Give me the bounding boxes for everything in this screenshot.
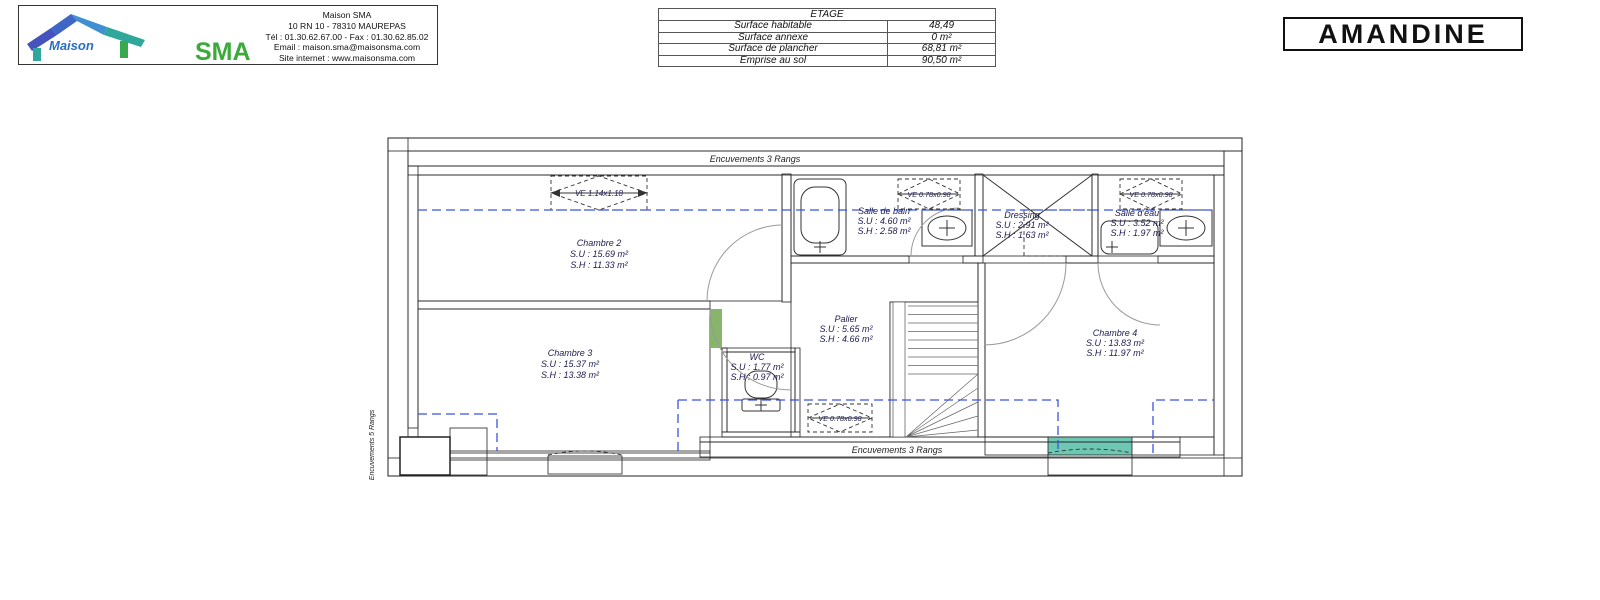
svg-text:Chambre 4: Chambre 4 — [1093, 328, 1138, 338]
room-label-chambre-4: Chambre 4 S.U : 13.83 m² S.H : 11.97 m² — [1086, 328, 1145, 358]
room-label-salle-de-bain: Salle de bain S.U : 4.60 m² S.H : 2.58 m… — [857, 206, 911, 236]
door-arc — [984, 263, 1066, 345]
svg-text:S.U : 1.77 m²: S.U : 1.77 m² — [730, 362, 784, 372]
roof-window-label: VE 0.78x0.98 — [1129, 190, 1172, 199]
svg-text:S.H : 11.97 m²: S.H : 11.97 m² — [1086, 348, 1144, 358]
svg-text:Salle d'eau: Salle d'eau — [1115, 208, 1159, 218]
floor-plan: Encuvements 3 Rangs — [0, 0, 1600, 600]
svg-text:Salle de bain: Salle de bain — [858, 206, 910, 216]
partition-walls — [418, 174, 1214, 437]
top-band-label: Encuvements 3 Rangs — [710, 154, 801, 164]
bathtub-icon — [794, 179, 846, 255]
bottom-band-label: Encuvements 3 Rangs — [852, 445, 943, 455]
svg-text:Palier: Palier — [834, 314, 858, 324]
bottom-structure: Encuvements 3 Rangs — [388, 138, 1242, 476]
washbasin-icon — [1160, 210, 1212, 246]
svg-text:S.U : 13.83 m²: S.U : 13.83 m² — [1086, 338, 1145, 348]
height-limit-line — [1153, 400, 1214, 453]
building-outline — [388, 138, 1242, 476]
room-label-palier: Palier S.U : 5.65 m² S.H : 4.66 m² — [819, 314, 873, 344]
door-arc — [707, 225, 783, 301]
roof-window-label: VE 0.78x0.98 — [818, 414, 861, 423]
svg-text:S.U : 15.69 m²: S.U : 15.69 m² — [570, 249, 629, 259]
svg-text:S.H : 11.33 m²: S.H : 11.33 m² — [570, 260, 628, 270]
svg-text:S.U : 5.65 m²: S.U : 5.65 m² — [819, 324, 873, 334]
washbasin-icon — [922, 210, 972, 246]
roof-window-marker: VE 0.78x0.98 — [1120, 179, 1182, 209]
wall-niche — [400, 437, 450, 475]
svg-text:S.H : 1.97 m²: S.H : 1.97 m² — [1110, 228, 1164, 238]
outer-walls — [388, 138, 1242, 476]
door-arc — [1098, 263, 1160, 325]
top-band — [408, 151, 1224, 166]
room-chambre-4-bay — [1048, 437, 1132, 455]
room-label-chambre-2: Chambre 2 S.U : 15.69 m² S.H : 11.33 m² — [570, 238, 629, 270]
roof-window-marker: VE 0.78x0.98 — [808, 404, 872, 432]
roof-window-marker: VE 0.78x0.98 — [898, 179, 960, 209]
stairs — [890, 302, 978, 437]
svg-text:Dressing: Dressing — [1004, 210, 1040, 220]
left-band-label: Encuvements 5 Rangs — [369, 409, 376, 480]
svg-text:S.U : 3.52 m²: S.U : 3.52 m² — [1110, 218, 1164, 228]
room-label-dressing: Dressing S.U : 2.91 m² S.H : 1.63 m² — [995, 210, 1049, 240]
svg-text:S.H : 2.58 m²: S.H : 2.58 m² — [857, 226, 911, 236]
room-chambre-3-stub — [710, 309, 722, 348]
room-labels: Chambre 2 S.U : 15.69 m² S.H : 11.33 m² … — [541, 206, 1165, 382]
svg-text:S.U : 4.60 m²: S.U : 4.60 m² — [857, 216, 911, 226]
svg-text:S.H : 13.38 m²: S.H : 13.38 m² — [541, 370, 600, 380]
right-insulation-band — [1214, 175, 1224, 455]
roof-window-label: VE 0.78x0.98 — [907, 190, 950, 199]
room-label-wc: WC S.U : 1.77 m² S.H : 0.97 m² — [730, 352, 784, 382]
svg-text:S.H : 1.63 m²: S.H : 1.63 m² — [995, 230, 1049, 240]
roof-window-label: VE 1.14x1.18 — [575, 189, 624, 198]
rooms — [418, 175, 1214, 455]
svg-text:S.U : 15.37 m²: S.U : 15.37 m² — [541, 359, 600, 369]
top-crosshatch-band — [408, 166, 1224, 175]
room-chambre-3 — [418, 309, 710, 453]
svg-text:S.H : 0.97 m²: S.H : 0.97 m² — [730, 372, 784, 382]
room-label-chambre-3: Chambre 3 S.U : 15.37 m² S.H : 13.38 m² — [541, 348, 600, 380]
roof-window-marker: VE 1.14x1.18 — [551, 176, 647, 210]
window-chambre-3 — [548, 456, 622, 474]
svg-text:WC: WC — [750, 352, 765, 362]
left-insulation-band — [408, 166, 418, 428]
svg-text:Chambre 3: Chambre 3 — [548, 348, 593, 358]
svg-text:S.U : 2.91 m²: S.U : 2.91 m² — [995, 220, 1049, 230]
stair-stringer — [893, 302, 905, 437]
svg-text:Chambre 2: Chambre 2 — [577, 238, 622, 248]
door-arc — [911, 208, 959, 256]
svg-text:S.H : 4.66 m²: S.H : 4.66 m² — [819, 334, 873, 344]
room-label-salle-deau: Salle d'eau S.U : 3.52 m² S.H : 1.97 m² — [1110, 208, 1164, 238]
